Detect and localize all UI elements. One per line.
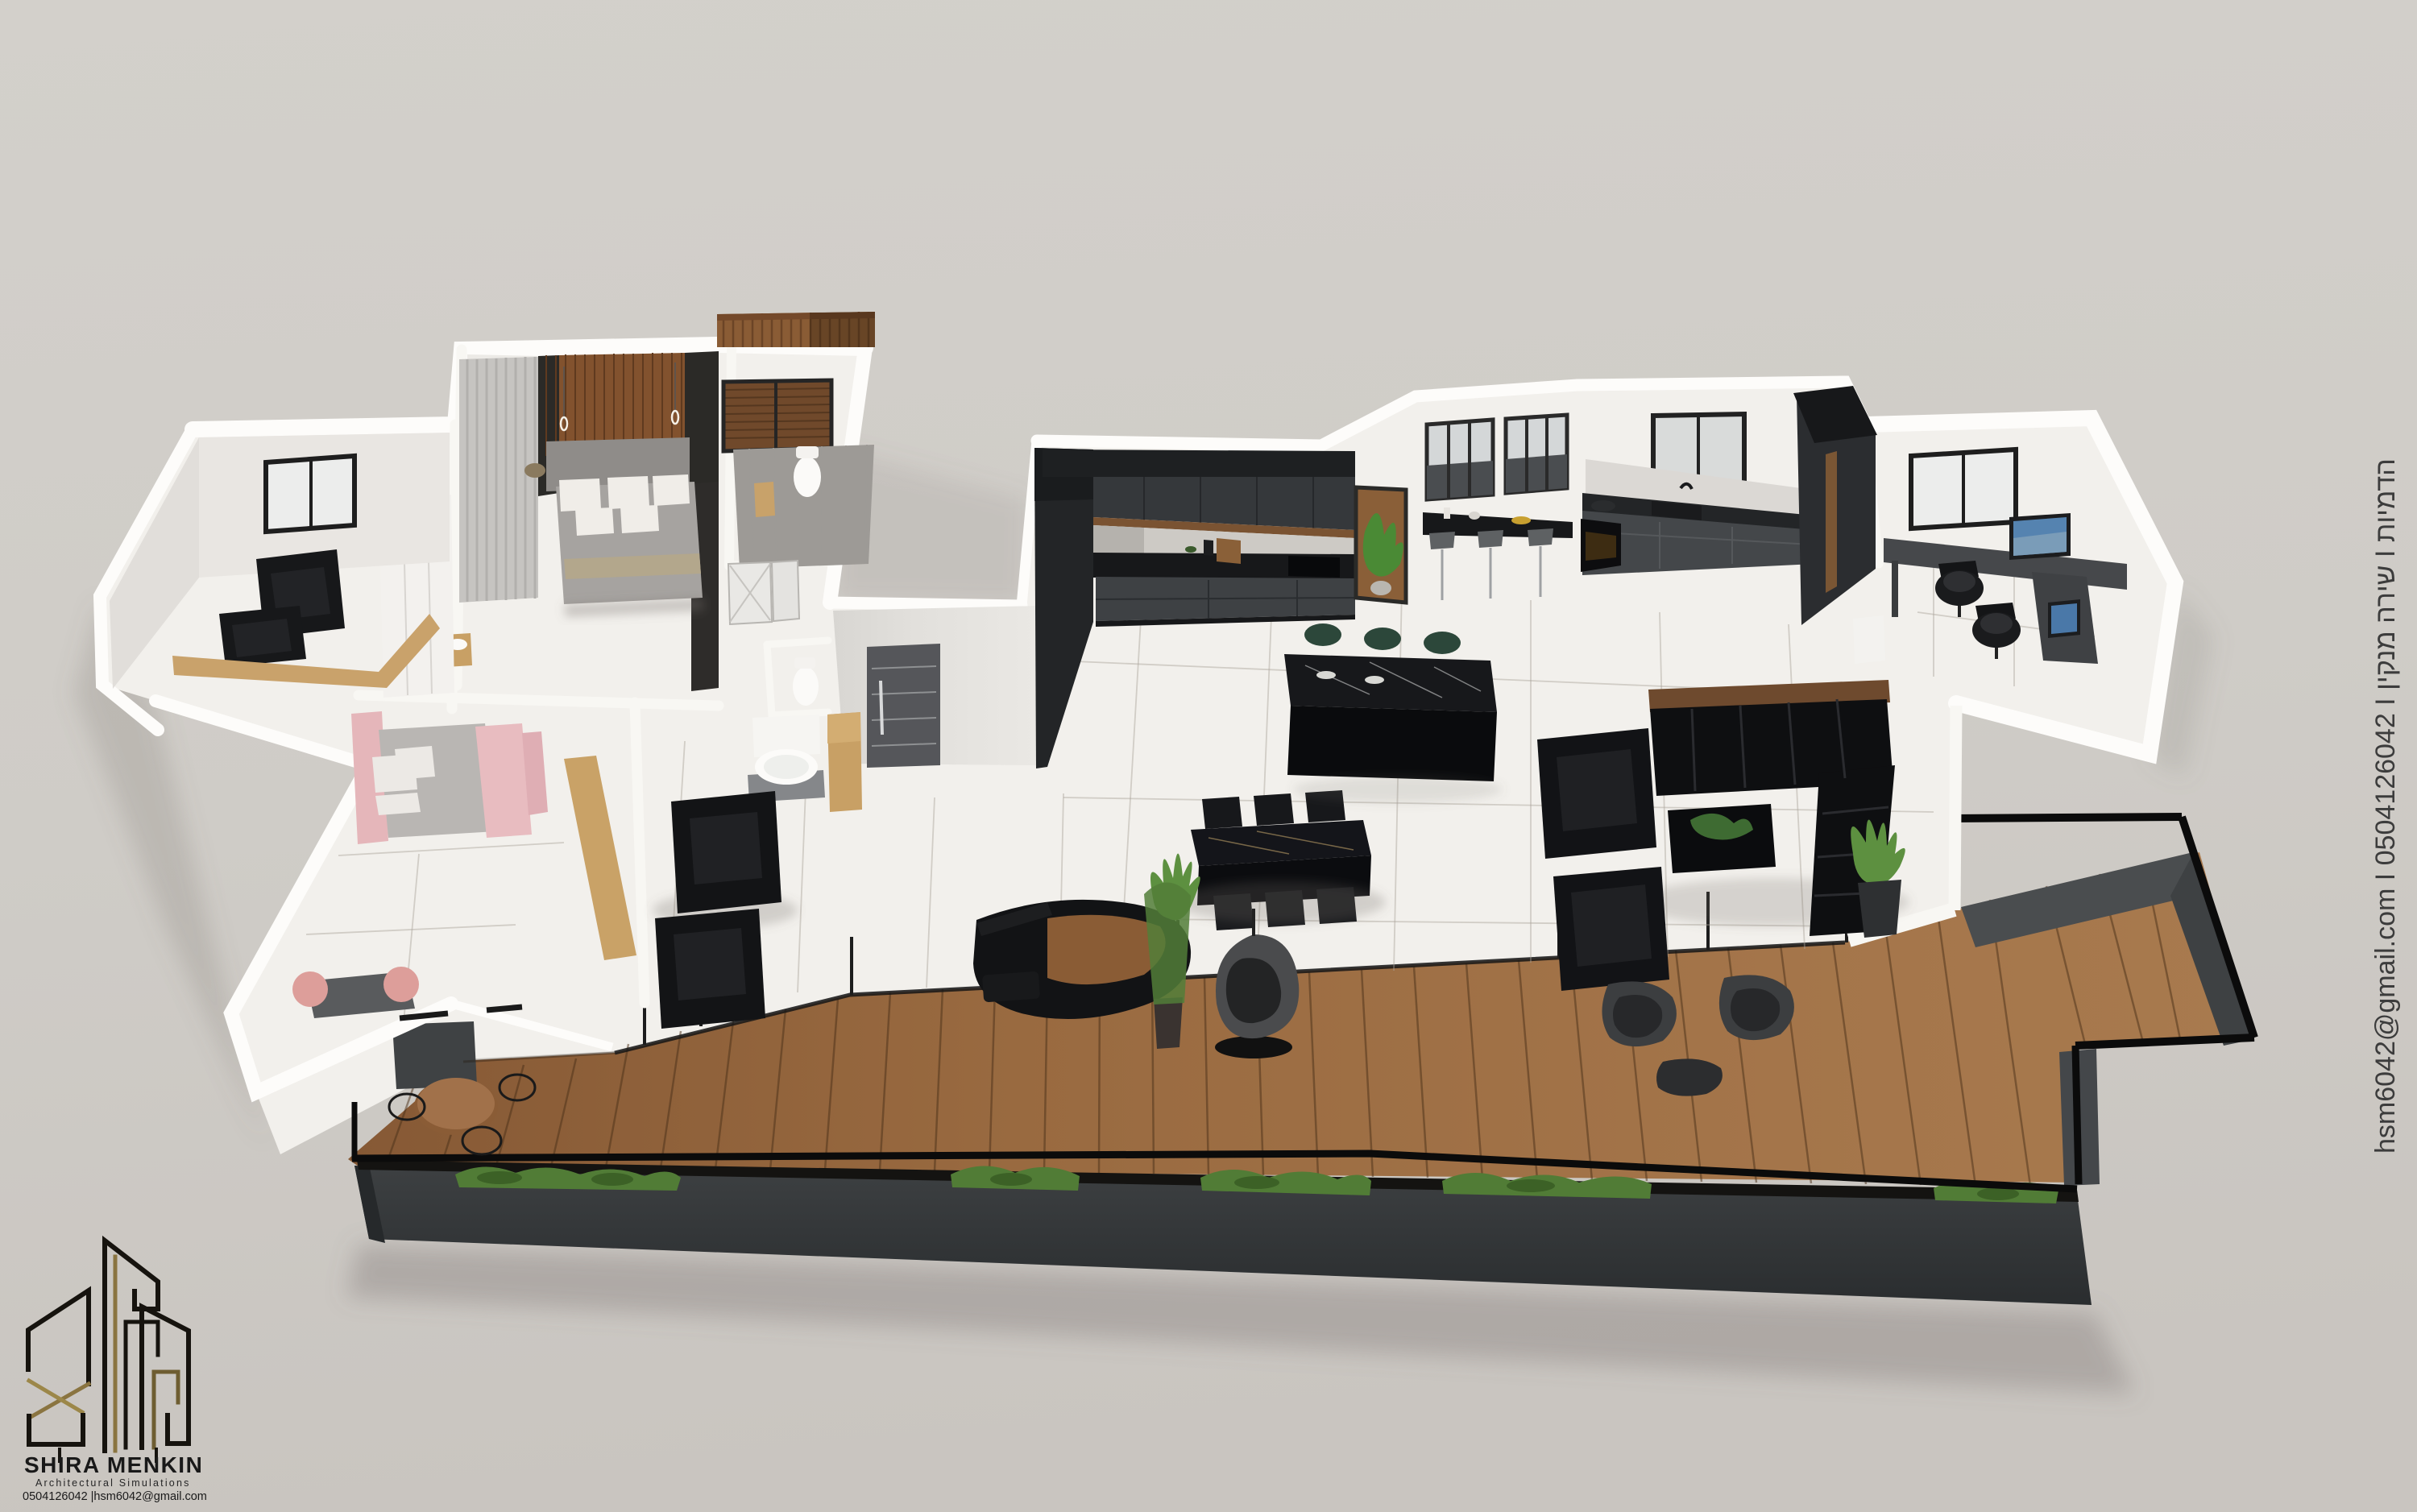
svg-text:SHIRA MENKIN: SHIRA MENKIN xyxy=(24,1452,203,1477)
svg-text:hsm6042@gmail.com I 05041260: hsm6042@gmail.com I 0504126042 I שירה מנ… xyxy=(2370,458,2401,1154)
svg-text:0504126042 |hsm6042@gmail.com: 0504126042 |hsm6042@gmail.com xyxy=(23,1490,207,1503)
svg-text:Architectural Simulations: Architectural Simulations xyxy=(35,1477,191,1489)
